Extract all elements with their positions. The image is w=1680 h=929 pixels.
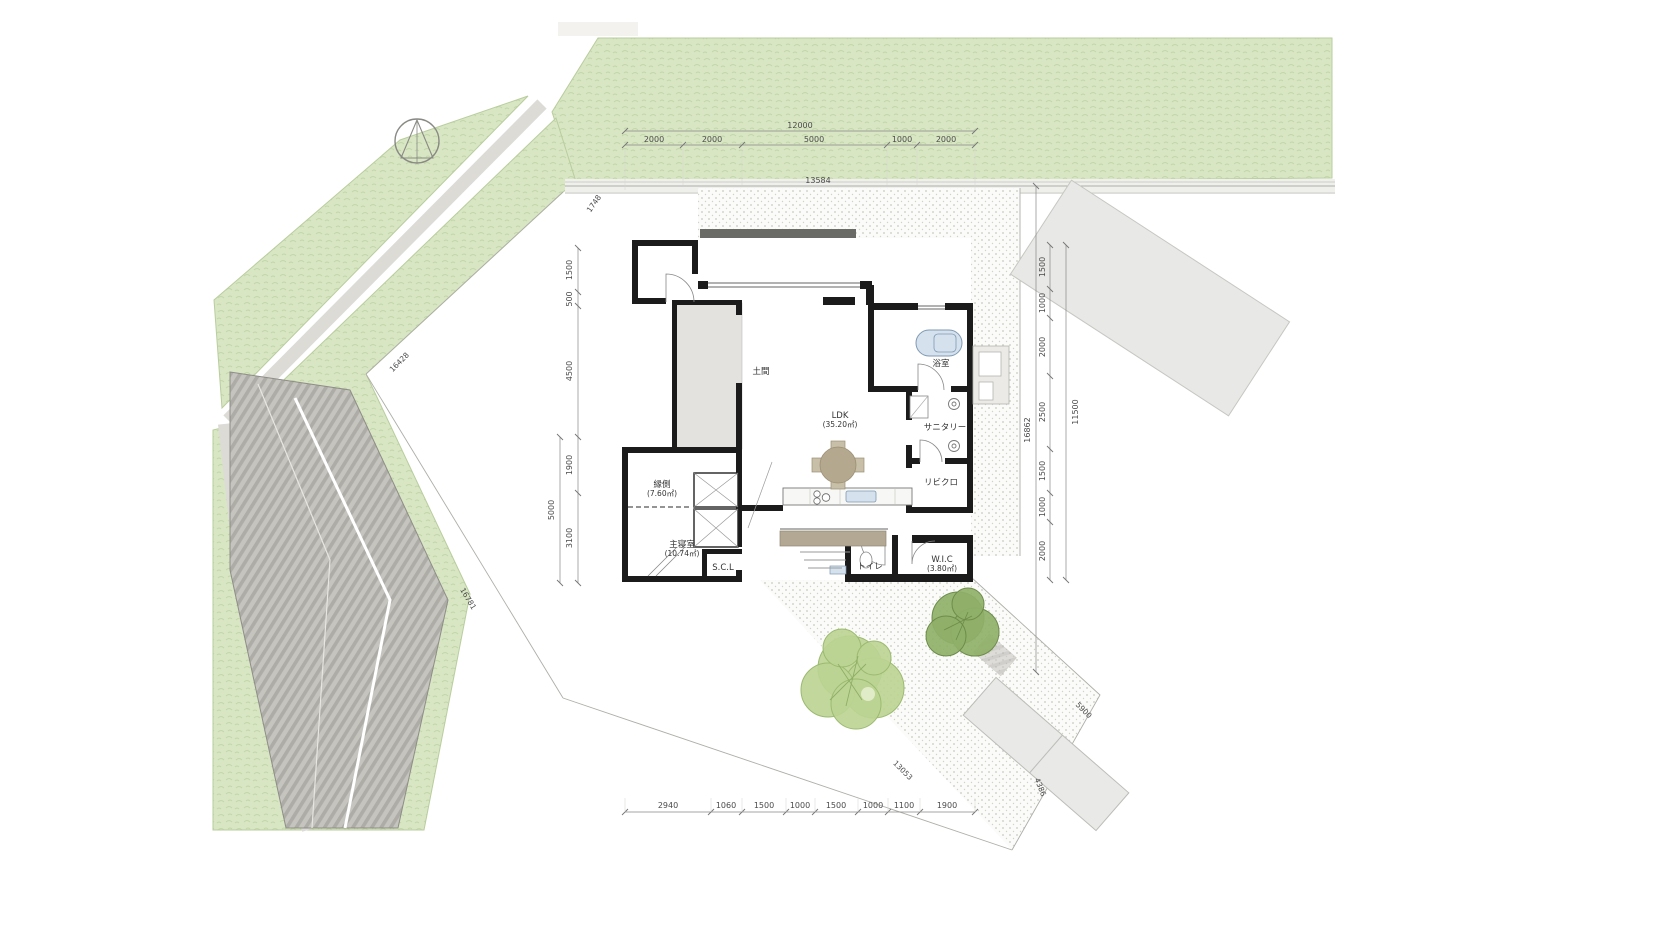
dim-diag-nw: 1748 <box>585 193 603 214</box>
dim-right-seg-7: 2000 <box>1038 541 1047 561</box>
dim-bottom-seg-3: 1500 <box>754 801 774 810</box>
dim-top-seg-4: 1000 <box>892 135 912 144</box>
kitchen-counter <box>783 488 912 505</box>
dim-top-overall: 12000 <box>787 121 812 130</box>
house-plan: 土間 LDK (35.20㎡) 浴室 サニタリー リビクロ W.I.C (3.8… <box>622 229 1009 582</box>
label-bedroom-area: (10.74㎡) <box>665 549 700 558</box>
dim-bottom-seg-4: 1000 <box>790 801 810 810</box>
dim-top-seg-3: 5000 <box>804 135 824 144</box>
label-living-closet: リビクロ <box>924 478 958 488</box>
dim-right-total: 16862 <box>1023 417 1032 442</box>
label-wic-area: (3.80㎡) <box>927 564 957 573</box>
dimension-bottom: 2940 1060 1500 1000 1500 1000 1100 1900 <box>622 798 978 815</box>
green-band-north <box>552 38 1332 184</box>
dim-left-overall: 5000 <box>547 500 556 520</box>
sink-icon <box>846 491 876 502</box>
dim-right-seg-4: 2500 <box>1038 402 1047 422</box>
dimension-left: 1500 500 4500 1900 3100 5000 <box>547 245 581 586</box>
neighbor-building <box>1010 180 1289 416</box>
dim-left-seg-2: 500 <box>565 291 574 306</box>
dim-top-seg-1: 2000 <box>644 135 664 144</box>
dim-right-seg-2: 1000 <box>1038 293 1047 313</box>
label-bath: 浴室 <box>932 358 950 369</box>
doma-floor <box>676 303 742 449</box>
label-toilet: トイレ <box>857 562 883 572</box>
dim-right-overall: 11500 <box>1071 399 1080 424</box>
dim-left-seg-4: 1900 <box>565 455 574 475</box>
dim-bottom-seg-2: 1060 <box>716 801 736 810</box>
label-ldk-area: (35.20㎡) <box>823 420 858 429</box>
label-engawa-area: (7.60㎡) <box>647 489 677 498</box>
dim-right-seg-5: 1500 <box>1038 461 1047 481</box>
label-scl: S.C.L <box>712 563 734 573</box>
label-sanitary: サニタリー <box>924 423 967 433</box>
dim-bottom-seg-6: 1000 <box>863 801 883 810</box>
dim-top-seg-5: 2000 <box>936 135 956 144</box>
deck-strip <box>780 531 886 546</box>
dim-left-seg-1: 1500 <box>565 260 574 280</box>
dim-left-seg-3: 4500 <box>565 361 574 381</box>
dim-right-seg-6: 1000 <box>1038 497 1047 517</box>
utility-unit <box>973 346 1009 404</box>
north-canopy <box>700 229 856 238</box>
dim-north-boundary: 13584 <box>805 176 830 185</box>
dim-top-seg-2: 2000 <box>702 135 722 144</box>
dim-bottom-seg-5: 1500 <box>826 801 846 810</box>
closets <box>694 473 738 547</box>
dim-left-seg-5: 3100 <box>565 528 574 548</box>
dim-diag-west: 16428 <box>388 350 411 373</box>
faint-stamp <box>558 22 638 36</box>
dim-diag-drive-sw: 13053 <box>891 759 914 782</box>
dim-bottom-seg-8: 1900 <box>937 801 957 810</box>
bathtub-icon <box>916 330 962 356</box>
site-plan-svg: 土間 LDK (35.20㎡) 浴室 サニタリー リビクロ W.I.C (3.8… <box>0 0 1680 929</box>
dim-right-seg-1: 1500 <box>1038 257 1047 277</box>
dim-right-seg-3: 2000 <box>1038 337 1047 357</box>
dim-bottom-seg-1: 2940 <box>658 801 678 810</box>
site-plan-drawing: 土間 LDK (35.20㎡) 浴室 サニタリー リビクロ W.I.C (3.8… <box>0 0 1680 929</box>
label-doma: 土間 <box>752 366 769 377</box>
dim-bottom-seg-7: 1100 <box>894 801 914 810</box>
